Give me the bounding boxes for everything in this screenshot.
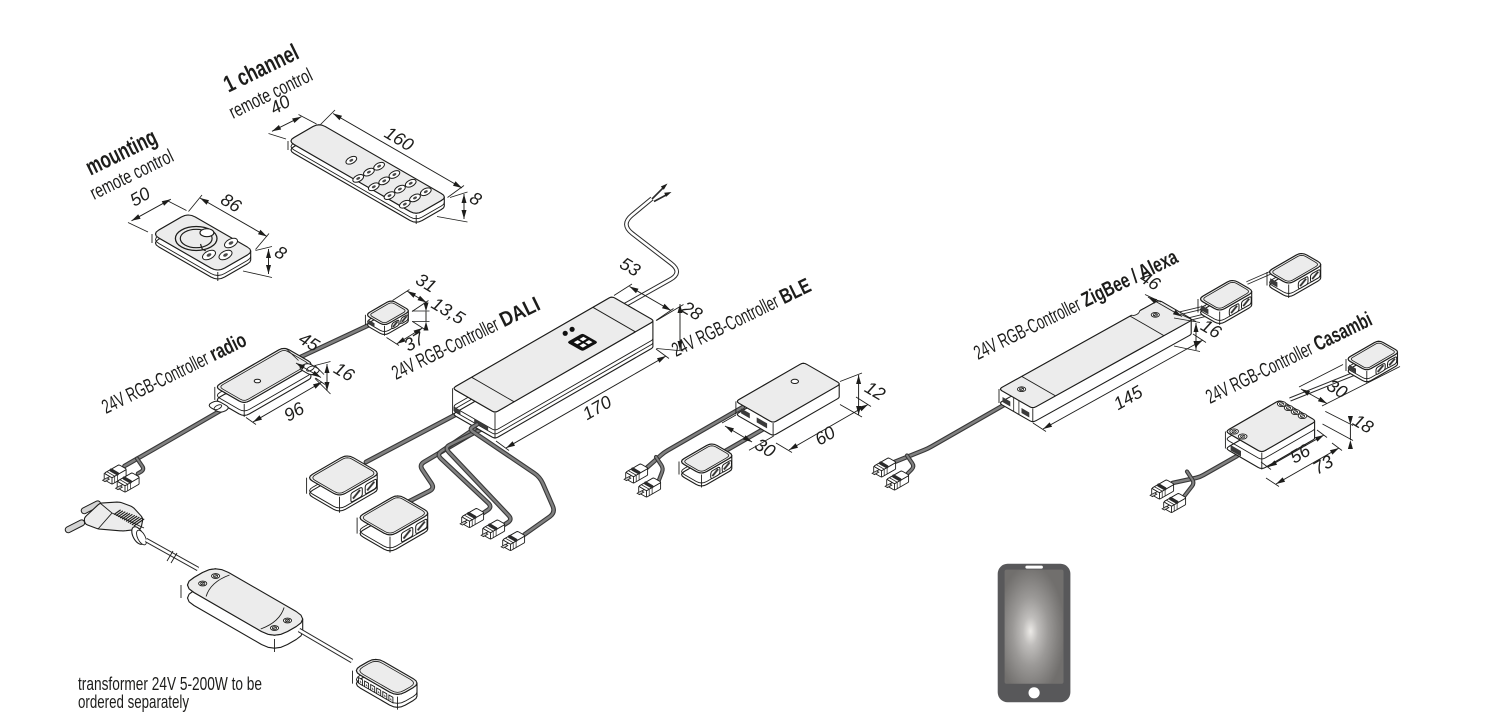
svg-text:transformer 24V 5-200W to be: transformer 24V 5-200W to be: [78, 674, 262, 694]
svg-text:ordered separately: ordered separately: [78, 692, 189, 712]
